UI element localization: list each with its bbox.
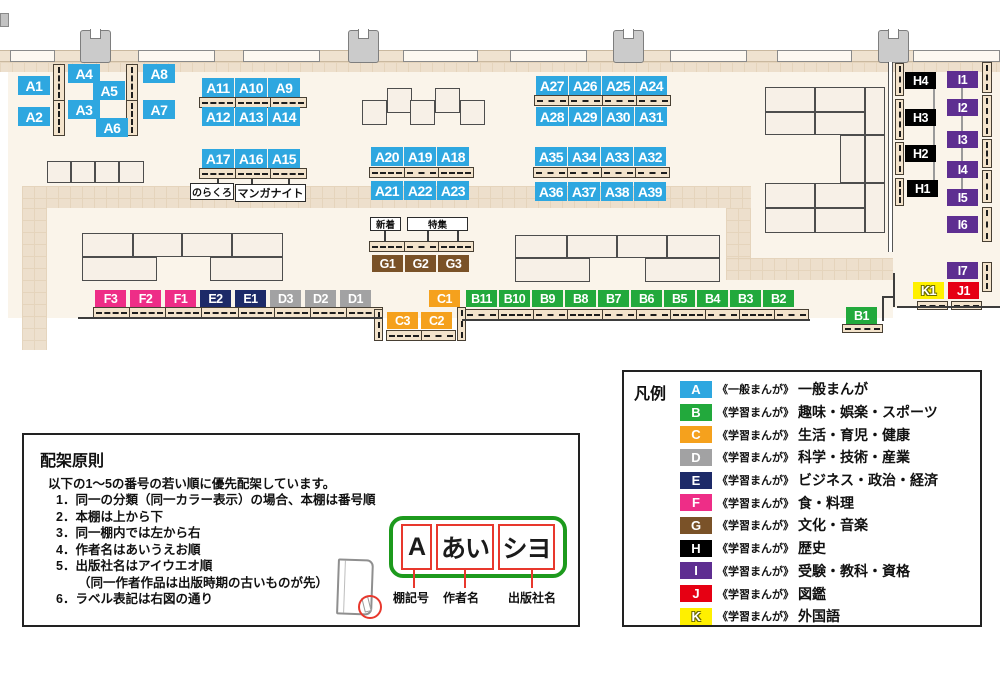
table-block <box>515 235 567 258</box>
shelf-note: マンガナイト <box>235 184 306 202</box>
legend-category: ビジネス・政治・経済 <box>798 470 938 490</box>
bookshelf <box>369 167 474 178</box>
map-label-K1: K1 <box>913 282 944 299</box>
map-label-E2: E2 <box>200 290 231 307</box>
map-label-A14: A14 <box>268 107 300 126</box>
leader-line <box>413 570 415 588</box>
legend-row-G: G《学習まんが》文化・音楽 <box>680 514 938 537</box>
legend-series: 《学習まんが》 <box>717 472 794 488</box>
wall-window <box>403 50 478 62</box>
map-label-A15: A15 <box>268 149 300 168</box>
bookshelf <box>199 168 307 179</box>
bookshelf <box>53 64 65 136</box>
legend-row-J: J《学習まんが》図鑑 <box>680 582 938 605</box>
bookshelf <box>895 142 904 175</box>
walkway <box>726 258 893 280</box>
map-label-A18: A18 <box>437 147 469 166</box>
bookshelf <box>386 330 456 341</box>
map-label-A24: A24 <box>635 76 667 95</box>
label-caption: 出版社名 <box>508 589 556 606</box>
table-block <box>815 112 865 135</box>
map-label-C2: C2 <box>421 312 452 329</box>
table-block <box>119 161 144 183</box>
legend-series: 《一般まんが》 <box>717 381 794 397</box>
map-label-D2: D2 <box>305 290 336 307</box>
wall <box>888 62 893 252</box>
wall-window <box>777 50 852 62</box>
map-label-I2: I2 <box>947 99 978 116</box>
pillar <box>613 30 644 63</box>
legend-series: 《学習まんが》 <box>717 517 794 533</box>
bookshelf <box>895 63 904 96</box>
label-part: シヨ <box>498 524 555 570</box>
map-label-A34: A34 <box>568 147 600 166</box>
table-block <box>435 88 460 113</box>
legend-row-I: I《学習まんが》受験・教科・資格 <box>680 560 938 583</box>
table-block <box>47 161 71 183</box>
wall-window <box>10 50 55 62</box>
map-label-A21: A21 <box>371 181 403 200</box>
legend-row-E: E《学習まんが》ビジネス・政治・経済 <box>680 469 938 492</box>
wall-window <box>670 50 747 62</box>
table-block <box>765 208 815 233</box>
map-label-I4: I4 <box>947 161 978 178</box>
pointer-tick <box>427 230 429 242</box>
map-label-A28: A28 <box>536 107 568 126</box>
legend-category: 文化・音楽 <box>798 515 868 535</box>
table-block <box>182 233 232 257</box>
map-label-I1: I1 <box>947 71 978 88</box>
map-label-F2: F2 <box>130 290 161 307</box>
table-block <box>815 208 865 233</box>
label-part: あい <box>436 524 494 570</box>
legend-chip-J: J <box>680 585 712 602</box>
table-block <box>765 183 815 208</box>
table-block <box>82 257 157 281</box>
bookshelf <box>982 139 992 168</box>
rules-list: 1．同一の分類（同一カラー表示）の場合、本棚は番号順2．本棚は上から下3．同一棚… <box>56 492 375 608</box>
wall-window <box>913 50 1000 62</box>
map-label-A31: A31 <box>635 107 667 126</box>
bookshelf <box>982 170 992 203</box>
map-label-B5: B5 <box>664 290 695 307</box>
legend-row-F: F《学習まんが》食・料理 <box>680 491 938 514</box>
map-label-A19: A19 <box>404 147 436 166</box>
legend-series: 《学習まんが》 <box>717 404 794 420</box>
map-label-H4: H4 <box>905 72 936 89</box>
pointer-tick <box>384 230 386 242</box>
map-label-A35: A35 <box>535 147 567 166</box>
map-label-A29: A29 <box>569 107 601 126</box>
map-label-A33: A33 <box>601 147 633 166</box>
legend-category: 外国語 <box>798 606 840 626</box>
legend-rows: A《一般まんが》一般まんがB《学習まんが》趣味・娯楽・スポーツC《学習まんが》生… <box>680 378 938 628</box>
map-label-D1: D1 <box>340 290 371 307</box>
wall <box>462 319 810 321</box>
map-label-F1: F1 <box>165 290 196 307</box>
table-block <box>865 135 885 183</box>
legend-category: 一般まんが <box>798 379 868 399</box>
map-label-C3: C3 <box>387 312 418 329</box>
map-label-A36: A36 <box>535 182 567 201</box>
map-label-C1: C1 <box>429 290 460 307</box>
map-label-A9: A9 <box>268 78 300 97</box>
wall <box>897 306 1000 308</box>
legend-title: 凡例 <box>634 380 666 404</box>
map-label-A32: A32 <box>634 147 666 166</box>
wall <box>893 273 895 307</box>
map-label-B6: B6 <box>631 290 662 307</box>
map-label-D3: D3 <box>270 290 301 307</box>
map-label-A10: A10 <box>235 78 267 97</box>
wall-window <box>243 50 320 62</box>
legend-row-H: H《学習まんが》歴史 <box>680 537 938 560</box>
map-label-H3: H3 <box>905 109 936 126</box>
map-label-A26: A26 <box>569 76 601 95</box>
legend-chip-H: H <box>680 540 712 557</box>
legend-chip-G: G <box>680 517 712 534</box>
legend-chip-K: K <box>680 608 712 625</box>
legend-series: 《学習まんが》 <box>717 495 794 511</box>
map-label-A16: A16 <box>235 149 267 168</box>
map-label-B2: B2 <box>763 290 794 307</box>
bookshelf <box>369 241 474 252</box>
rules-intro: 以下の1～5の番号の若い順に優先配架しています。 <box>48 473 335 492</box>
rules-item: 1．同一の分類（同一カラー表示）の場合、本棚は番号順 <box>56 492 375 509</box>
map-label-A2: A2 <box>18 107 50 126</box>
map-label-B9: B9 <box>532 290 563 307</box>
map-label-A12: A12 <box>202 107 234 126</box>
table-block <box>765 112 815 135</box>
table-block <box>82 233 133 257</box>
map-label-A6: A6 <box>96 118 128 137</box>
label-highlight-circle <box>358 595 382 619</box>
rules-item: 4．作者名はあいうえお順 <box>56 542 375 559</box>
map-label-H2: H2 <box>905 145 936 162</box>
pointer-tick <box>457 230 459 242</box>
legend-row-A: A《一般まんが》一般まんが <box>680 378 938 401</box>
map-label-A27: A27 <box>536 76 568 95</box>
table-block <box>133 233 182 257</box>
table-block <box>645 258 720 282</box>
table-block <box>617 235 667 258</box>
map-label-F3: F3 <box>95 290 126 307</box>
map-label-B8: B8 <box>565 290 596 307</box>
map-label-B7: B7 <box>598 290 629 307</box>
rules-item: 2．本棚は上から下 <box>56 509 375 526</box>
map-label-B1: B1 <box>846 307 877 324</box>
map-label-I6: I6 <box>947 216 978 233</box>
bookshelf <box>982 262 992 292</box>
pillar <box>348 30 379 63</box>
wall-stub <box>0 13 9 27</box>
table-block <box>362 100 387 125</box>
shelf-note: のらくろ <box>190 183 234 200</box>
map-label-G2: G2 <box>405 255 436 272</box>
bookshelf <box>457 307 466 341</box>
map-label-A25: A25 <box>602 76 634 95</box>
legend-category: 受験・教科・資格 <box>798 561 910 581</box>
manga-floor-map-page: のらくろマンガナイト新着特集A1A2A4A5A3A6A8A7A11A10A9A1… <box>0 0 1000 700</box>
map-label-G1: G1 <box>372 255 403 272</box>
map-label-A38: A38 <box>601 182 633 201</box>
legend-chip-D: D <box>680 449 712 466</box>
legend-chip-B: B <box>680 404 712 421</box>
legend-category: 生活・育児・健康 <box>798 425 910 445</box>
map-label-B3: B3 <box>730 290 761 307</box>
leader-line <box>464 570 466 588</box>
wall-window <box>510 50 587 62</box>
map-label-A3: A3 <box>68 100 100 119</box>
bookshelf <box>374 309 383 341</box>
legend-chip-F: F <box>680 494 712 511</box>
bookshelf <box>982 95 992 137</box>
pillar <box>80 30 111 63</box>
legend-category: 図鑑 <box>798 584 826 604</box>
shelf-note: 特集 <box>407 217 468 231</box>
table-block <box>840 135 865 183</box>
table-block <box>410 100 435 125</box>
table-block <box>865 87 885 135</box>
legend-chip-I: I <box>680 562 712 579</box>
table-block <box>815 87 865 112</box>
walkway <box>22 208 47 350</box>
legend-box: 凡例 A《一般まんが》一般まんがB《学習まんが》趣味・娯楽・スポーツC《学習まん… <box>622 370 982 627</box>
legend-category: 趣味・娯楽・スポーツ <box>798 402 938 422</box>
table-block <box>71 161 95 183</box>
label-part: A <box>401 524 432 570</box>
map-label-I3: I3 <box>947 131 978 148</box>
pillar <box>878 30 909 63</box>
leader-line <box>531 570 533 588</box>
walkway <box>726 208 751 260</box>
wall <box>78 317 383 319</box>
label-example-frame: Aあいシヨ <box>389 516 567 578</box>
map-label-A7: A7 <box>143 100 175 119</box>
map-label-I7: I7 <box>947 262 978 279</box>
map-label-A23: A23 <box>437 181 469 200</box>
map-label-A17: A17 <box>202 149 234 168</box>
legend-row-B: B《学習まんが》趣味・娯楽・スポーツ <box>680 401 938 424</box>
bookshelf <box>982 62 992 93</box>
bookshelf <box>895 178 904 206</box>
bookshelf <box>533 167 670 178</box>
legend-chip-C: C <box>680 426 712 443</box>
table-block <box>865 183 885 233</box>
shelf-connector-line <box>933 85 935 190</box>
table-block <box>515 258 590 282</box>
legend-chip-E: E <box>680 472 712 489</box>
map-label-E1: E1 <box>235 290 266 307</box>
rules-item: 6．ラベル表記は右図の通り <box>56 591 375 608</box>
map-label-A1: A1 <box>18 76 50 95</box>
legend-category: 科学・技術・産業 <box>798 447 910 467</box>
table-block <box>667 235 720 258</box>
table-block <box>210 257 283 281</box>
map-label-A5: A5 <box>93 81 125 100</box>
label-caption: 作者名 <box>443 589 479 606</box>
wall-window <box>138 50 215 62</box>
rules-item: 3．同一棚内では左から右 <box>56 525 375 542</box>
table-block <box>232 233 283 257</box>
rules-item: 5．出版社名はアイウエオ順 <box>56 558 375 575</box>
bookshelf <box>982 207 992 242</box>
map-label-A11: A11 <box>202 78 234 97</box>
map-label-H1: H1 <box>907 180 938 197</box>
legend-series: 《学習まんが》 <box>717 586 794 602</box>
table-block <box>387 88 412 113</box>
table-block <box>567 235 617 258</box>
legend-series: 《学習まんが》 <box>717 608 794 624</box>
rules-title: 配架原則 <box>40 447 104 471</box>
bookshelf <box>534 95 671 106</box>
table-block <box>765 87 815 112</box>
map-label-A30: A30 <box>602 107 634 126</box>
rules-item: （同一作者作品は出版時期の古いものが先） <box>56 575 375 592</box>
bookshelf <box>842 324 883 333</box>
legend-series: 《学習まんが》 <box>717 563 794 579</box>
map-label-J1: J1 <box>948 282 979 299</box>
label-caption: 棚記号 <box>393 589 429 606</box>
bookshelf <box>895 99 904 140</box>
map-label-A37: A37 <box>568 182 600 201</box>
table-block <box>95 161 119 183</box>
map-label-I5: I5 <box>947 189 978 206</box>
map-label-A39: A39 <box>634 182 666 201</box>
map-label-A20: A20 <box>371 147 403 166</box>
legend-series: 《学習まんが》 <box>717 540 794 556</box>
wall <box>882 296 884 321</box>
legend-row-K: K《学習まんが》外国語 <box>680 605 938 628</box>
legend-category: 歴史 <box>798 538 826 558</box>
table-block <box>815 183 865 208</box>
map-label-B10: B10 <box>499 290 530 307</box>
legend-series: 《学習まんが》 <box>717 427 794 443</box>
map-label-B4: B4 <box>697 290 728 307</box>
legend-row-D: D《学習まんが》科学・技術・産業 <box>680 446 938 469</box>
legend-series: 《学習まんが》 <box>717 449 794 465</box>
legend-category: 食・料理 <box>798 493 854 513</box>
table-block <box>460 100 485 125</box>
map-label-A8: A8 <box>143 64 175 83</box>
shelf-note: 新着 <box>370 217 401 231</box>
legend-row-C: C《学習まんが》生活・育児・健康 <box>680 423 938 446</box>
map-label-A13: A13 <box>235 107 267 126</box>
map-label-A22: A22 <box>404 181 436 200</box>
legend-chip-A: A <box>680 381 712 398</box>
map-label-B11: B11 <box>466 290 497 307</box>
map-label-G3: G3 <box>438 255 469 272</box>
